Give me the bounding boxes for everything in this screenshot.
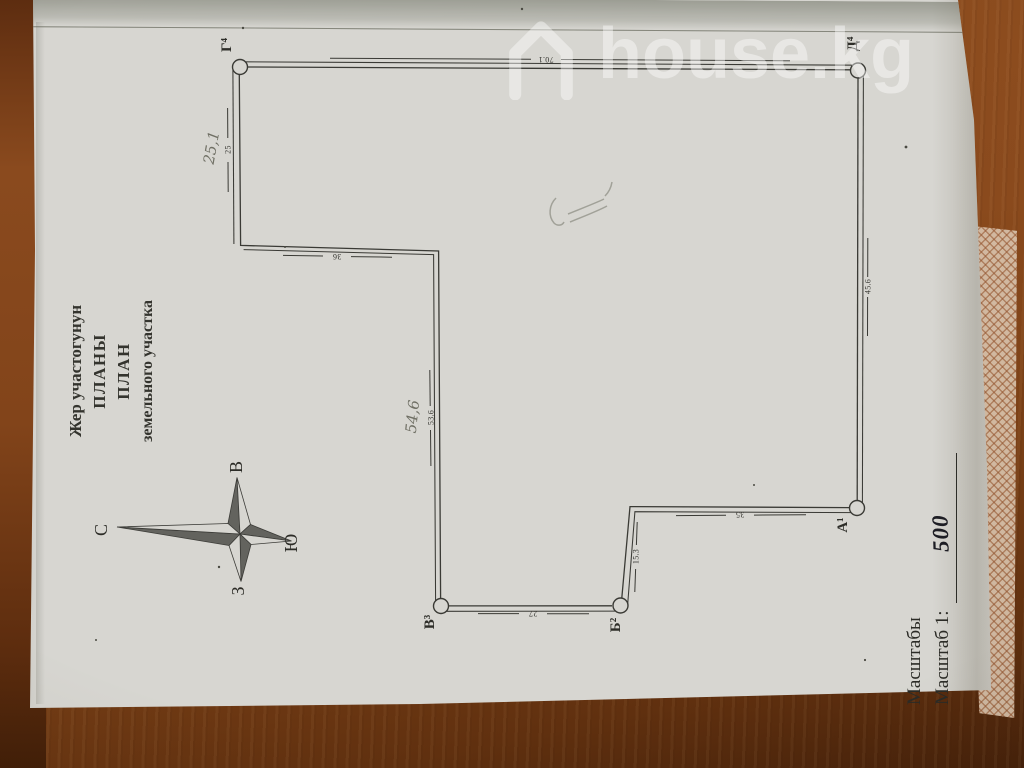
- dim-step: 36: [323, 251, 351, 262]
- point-label-v3: В³: [419, 606, 441, 638]
- compass-label-south: Ю: [281, 532, 301, 554]
- compass-label-east: В: [226, 456, 246, 478]
- point-label-b2: Б²: [605, 609, 627, 641]
- dim-right: 45.6: [863, 273, 874, 301]
- paper-crease-left: [36, 22, 45, 704]
- title-line-plan: ПЛАН: [112, 281, 136, 461]
- compass-label-west: З: [228, 580, 248, 602]
- dim-bottom: 27: [519, 608, 547, 619]
- dim-notch-side: 15.3: [631, 543, 642, 571]
- compass-label-north: С: [91, 519, 111, 541]
- scale-value: 500: [926, 514, 955, 552]
- point-label-a1: А¹: [832, 509, 854, 541]
- title-block: Жер участогунун ПЛАНЫ ПЛАН земельного уч…: [64, 281, 160, 461]
- dim-notch-top: 35: [726, 509, 754, 520]
- title-line-kyrgyz: Жер участогунун: [64, 281, 88, 461]
- scale-block: Масштабы Масштаб 1:500: [901, 435, 963, 705]
- dim-left-upper: 25: [223, 136, 234, 164]
- title-line-russian: земельного участка: [136, 281, 160, 461]
- dim-top: 70.1: [532, 54, 560, 65]
- scale-label-1: Масштабы: [901, 435, 929, 705]
- dim-left-lower: 53.6: [426, 404, 437, 432]
- point-label-g4: Г⁴: [216, 29, 238, 61]
- scale-label-2: Масштаб 1:: [932, 610, 953, 705]
- scale-row: Масштаб 1:500: [929, 435, 957, 705]
- point-label-d4: Д⁴: [842, 28, 864, 60]
- scale-underline: 500: [937, 453, 957, 603]
- paper-fold-shadow-top: [0, 0, 1024, 33]
- title-line-plany: ПЛАНЫ: [88, 281, 112, 461]
- photo-of-land-plan-document: Г⁴ Д⁴ А¹ Б² В³ 70.1 45.6 35 15.3 27 53.6…: [0, 0, 1024, 768]
